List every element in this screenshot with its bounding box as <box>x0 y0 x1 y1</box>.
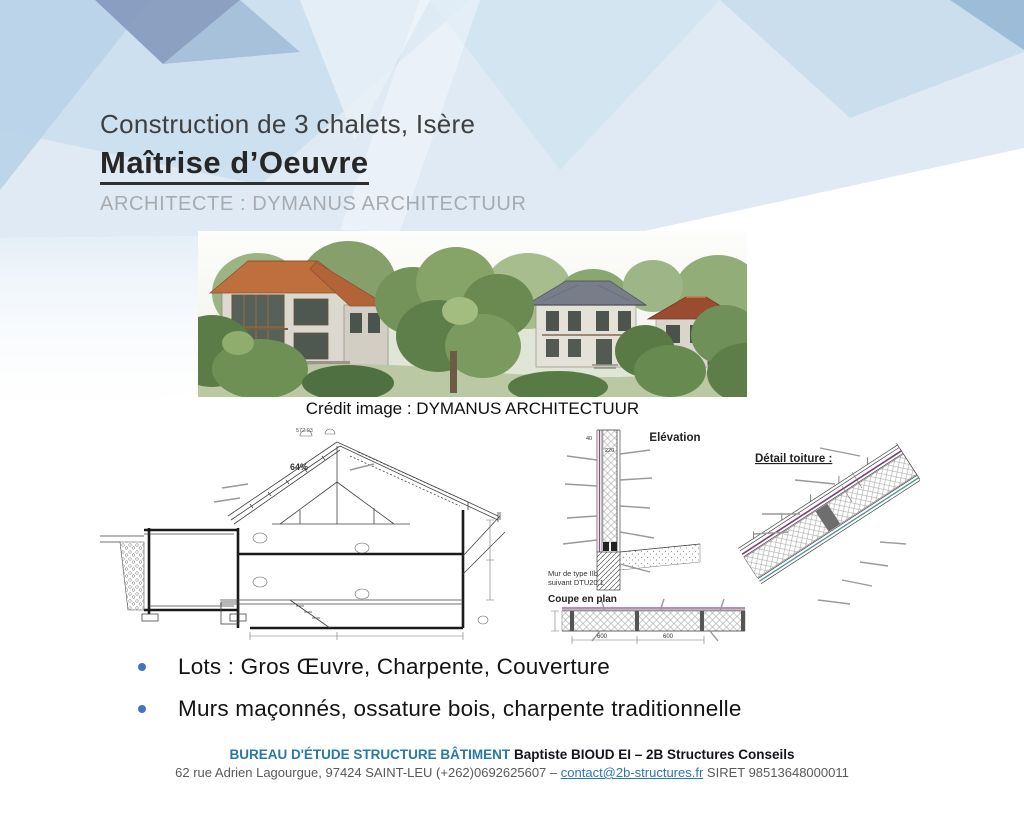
bullet-icon <box>138 705 146 713</box>
drawing-building-section <box>100 429 505 640</box>
slide-title: Construction de 3 chalets, Isère <box>100 108 527 141</box>
drawing-wall-elevation <box>563 430 700 590</box>
architect-line: ARCHITECTE : DYMANUS ARCHITECTUUR <box>100 193 527 216</box>
footer-email-link[interactable]: contact@2b-structures.fr <box>561 765 704 780</box>
image-credit-caption: Crédit image : DYMANUS ARCHITECTUUR <box>198 399 747 419</box>
section-slope-label: 64% <box>290 462 308 472</box>
slide-subtitle: Maîtrise d’Oeuvre <box>100 145 369 185</box>
list-item: Murs maçonnés, ossature bois, charpente … <box>138 694 742 723</box>
list-item: Lots : Gros Œuvre, Charpente, Couverture <box>138 652 742 681</box>
presentation-slide: Construction de 3 chalets, Isère Maîtris… <box>0 0 1024 827</box>
technical-drawings: 64% 572.93 <box>100 424 920 646</box>
plan-dim-left: 600 <box>597 634 608 640</box>
footer: BUREAU D'ÉTUDE STRUCTURE BÂTIMENT Baptis… <box>0 747 1024 780</box>
footer-siret: SIRET 98513648000011 <box>707 765 849 780</box>
bullet-icon <box>138 663 146 671</box>
plan-dim-right: 600 <box>663 634 674 640</box>
footer-line1: BUREAU D'ÉTUDE STRUCTURE BÂTIMENT Baptis… <box>0 747 1024 762</box>
bullet-text-murs: Murs maçonnés, ossature bois, charpente … <box>178 694 742 723</box>
footer-line2: 62 rue Adrien Lagourgue, 97424 SAINT-LEU… <box>0 765 1024 780</box>
footer-address: 62 rue Adrien Lagourgue, 97424 SAINT-LEU… <box>175 765 557 780</box>
drawing-plan-section <box>551 599 745 644</box>
roof-detail-title: Détail toiture : <box>755 453 832 465</box>
section-ridge-elevation: 572.93 <box>296 428 313 434</box>
bullet-list: Lots : Gros Œuvre, Charpente, Couverture… <box>138 652 742 737</box>
plan-title: Coupe en plan <box>548 594 617 605</box>
elevation-dim-wall: 220 <box>605 448 614 454</box>
footer-company-name: Baptiste BIOUD EI – 2B Structures Consei… <box>514 747 795 762</box>
header-block: Construction de 3 chalets, Isère Maîtris… <box>100 108 527 216</box>
elevation-dim-top: 40 <box>586 436 592 442</box>
footer-org-name: BUREAU D'ÉTUDE STRUCTURE BÂTIMENT <box>229 747 510 762</box>
elevation-title: Elévation <box>649 432 700 444</box>
wall-note-line2: suivant DTU20.1 <box>548 578 604 587</box>
chalets-rendering-image <box>198 231 747 397</box>
bullet-text-lots: Lots : Gros Œuvre, Charpente, Couverture <box>178 652 610 681</box>
wall-note-line1: Mur de type IIb <box>548 569 598 578</box>
